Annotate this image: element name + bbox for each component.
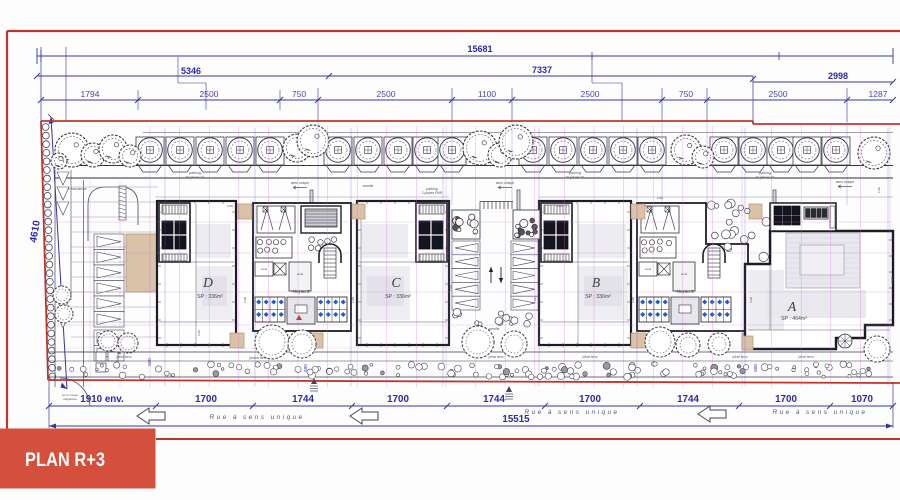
svg-text:pièce terro: pièce terro	[488, 355, 503, 359]
svg-text:1744: 1744	[292, 394, 314, 405]
svg-text:local: local	[681, 272, 688, 276]
svg-text:500: 500	[303, 364, 308, 372]
svg-text:obligatoire: obligatoire	[63, 397, 77, 401]
svg-text:1190: 1190	[533, 296, 537, 303]
svg-text:500: 500	[753, 364, 758, 372]
svg-text:1190: 1190	[657, 196, 664, 200]
svg-text:Noyau 3: Noyau 3	[676, 289, 694, 294]
svg-text:parking: parking	[189, 171, 201, 175]
svg-text:Rue à sens unique: Rue à sens unique	[524, 409, 619, 416]
svg-text:pièce terro: pièce terro	[116, 355, 131, 359]
svg-text:C: C	[391, 275, 401, 290]
svg-text:1190: 1190	[449, 284, 453, 291]
svg-text:A: A	[787, 299, 797, 314]
svg-text:750: 750	[679, 89, 693, 99]
svg-text:1190: 1190	[890, 276, 894, 283]
svg-text:Noyau 2: Noyau 2	[292, 289, 310, 294]
svg-text:1190: 1190	[243, 296, 247, 303]
svg-text:1190: 1190	[351, 296, 355, 303]
svg-text:2500: 2500	[200, 89, 219, 99]
svg-text:1190: 1190	[227, 204, 234, 208]
svg-text:750: 750	[292, 89, 306, 99]
svg-text:1700: 1700	[387, 394, 409, 405]
svg-text:1190: 1190	[877, 186, 881, 193]
svg-text:pièce terro: pièce terro	[732, 355, 747, 359]
svg-text:jardins terro: jardins terro	[249, 356, 267, 360]
svg-text:SP : 336m²: SP : 336m²	[585, 294, 611, 300]
svg-text:1744: 1744	[483, 394, 505, 405]
svg-text:SP : 336m²: SP : 336m²	[197, 294, 223, 300]
svg-text:1070: 1070	[851, 394, 873, 405]
svg-text:2500: 2500	[377, 89, 396, 99]
svg-text:2500: 2500	[769, 89, 788, 99]
svg-text:1190: 1190	[197, 329, 201, 336]
svg-text:sens unique: sens unique	[291, 181, 309, 185]
svg-text:pièce terro: pièce terro	[582, 355, 597, 359]
svg-text:1700: 1700	[195, 394, 217, 405]
svg-text:1700: 1700	[579, 394, 601, 405]
svg-text:1700: 1700	[775, 394, 797, 405]
svg-text:Rue à sens unique: Rue à sens unique	[772, 409, 867, 416]
svg-text:1100: 1100	[478, 89, 497, 99]
svg-text:1794: 1794	[81, 89, 100, 99]
svg-text:D: D	[202, 275, 213, 290]
svg-text:parking: parking	[759, 171, 771, 175]
svg-text:10 places VL: 10 places VL	[565, 176, 585, 180]
svg-text:15681: 15681	[467, 44, 492, 54]
svg-text:SP : 336m²: SP : 336m²	[385, 294, 411, 300]
svg-text:local: local	[645, 267, 652, 271]
svg-text:10 places VL: 10 places VL	[185, 176, 205, 180]
svg-text:2 places PMR: 2 places PMR	[422, 191, 443, 195]
svg-text:venelle: venelle	[489, 327, 500, 331]
svg-text:7337: 7337	[532, 65, 552, 75]
svg-text:2500: 2500	[581, 89, 600, 99]
svg-text:Rue à sens unique: Rue à sens unique	[209, 414, 304, 421]
svg-text:1190: 1190	[631, 296, 635, 303]
svg-text:venelle: venelle	[363, 184, 374, 188]
svg-text:local: local	[261, 267, 268, 271]
svg-text:1744: 1744	[677, 394, 699, 405]
svg-text:5346: 5346	[181, 66, 201, 76]
svg-text:10 places VL: 10 places VL	[755, 176, 775, 180]
svg-text:1190: 1190	[749, 296, 753, 303]
svg-text:1287: 1287	[869, 89, 888, 99]
svg-text:SP : 464m²: SP : 464m²	[781, 316, 807, 322]
svg-text:500: 500	[147, 358, 152, 366]
svg-text:sens unique: sens unique	[836, 180, 854, 184]
svg-text:1190: 1190	[557, 204, 564, 208]
svg-text:pièce terro: pièce terro	[798, 355, 813, 359]
svg-text:B: B	[592, 275, 600, 290]
svg-text:2998: 2998	[828, 71, 848, 81]
svg-text:1910 env.: 1910 env.	[80, 394, 124, 405]
svg-text:PLAN R+3: PLAN R+3	[25, 450, 105, 471]
svg-text:parking: parking	[569, 171, 581, 175]
